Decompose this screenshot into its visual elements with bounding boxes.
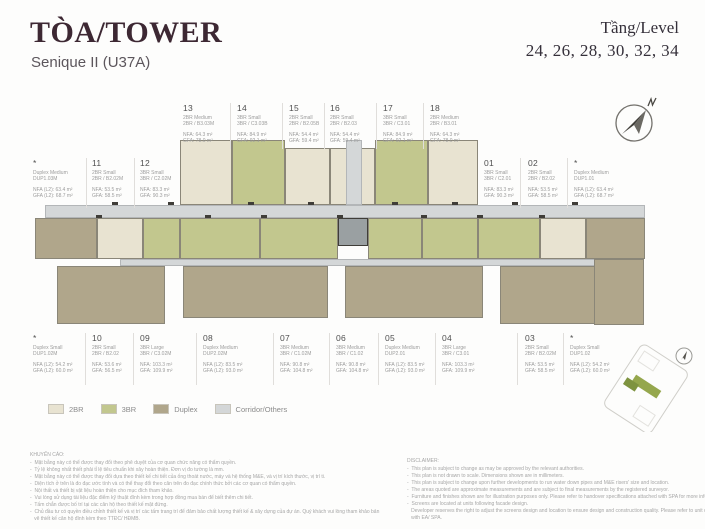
label-divider xyxy=(196,333,197,385)
unit-label-duplex-medium-right: * Duplex Medium DUP1.01 NFA (L2): 63.4 m… xyxy=(574,158,628,199)
plan-lower-walkway xyxy=(120,259,600,266)
unit-number: 12 xyxy=(140,158,194,168)
unit-number: 10 xyxy=(92,333,146,343)
plan-unit-09-block xyxy=(180,218,260,259)
plan-elevator-core xyxy=(338,218,368,246)
plan-unit-15-block xyxy=(285,148,330,205)
level-label: Tầng/Level xyxy=(526,18,679,38)
unit-label-duplex-medium-left: * Duplex Medium DUP1.03M NFA (L2): 63.4 … xyxy=(33,158,87,199)
unit-label-11: 11 2BR Small 2BR / B2.02M NFA: 53.5 m² G… xyxy=(92,158,146,199)
note-line: - The areas quoted are approximate measu… xyxy=(407,487,699,494)
plan-unit-17-block xyxy=(375,140,428,205)
label-divider xyxy=(567,158,568,208)
unit-code: 3BR / C3.01 xyxy=(383,121,437,127)
plan-duplex-small-left-block xyxy=(57,266,165,324)
unit-number: 18 xyxy=(430,103,484,113)
unit-label-06: 06 3BR Medium 3BR / C1.02 NFA: 90.8 m² G… xyxy=(336,333,390,374)
site-minimap xyxy=(596,342,698,432)
legend-swatch-duplex xyxy=(153,404,169,414)
wall-mark xyxy=(205,215,211,218)
legend-swatch-corridor xyxy=(215,404,231,414)
unit-number: 11 xyxy=(92,158,146,168)
label-divider xyxy=(329,333,330,385)
unit-number: 06 xyxy=(336,333,390,343)
unit-code: 2BR / B2.02 xyxy=(92,351,146,357)
unit-code: 3BR / C3.02M xyxy=(140,351,194,357)
label-divider xyxy=(376,103,377,149)
unit-number: 17 xyxy=(383,103,437,113)
wall-mark xyxy=(248,202,254,205)
note-line: - Nội thất và thiết bị vật liệu hoàn thi… xyxy=(30,488,402,495)
level-numbers: 24, 26, 28, 30, 32, 34 xyxy=(526,41,679,61)
wall-mark xyxy=(337,215,343,218)
note-line: - Chủ đầu tư có quyền điều chỉnh thiết k… xyxy=(30,509,402,516)
note-line: Developer reserves the right to adjust t… xyxy=(407,508,699,515)
plan-unit-12-block xyxy=(143,218,180,259)
label-divider xyxy=(134,158,135,208)
unit-code: 2BR / B3.03M xyxy=(183,121,237,127)
plan-unit-11-block xyxy=(97,218,143,259)
plan-duplex-right-lower-block xyxy=(594,259,644,325)
label-divider xyxy=(563,333,564,385)
unit-gfa: GFA (L2): 93.0 m² xyxy=(385,368,439,374)
legend-swatch-3br xyxy=(101,404,117,414)
unit-code: DUP1.02M xyxy=(33,351,87,357)
label-divider xyxy=(85,333,86,385)
unit-gfa: GFA: 104.8 m² xyxy=(280,368,334,374)
unit-label-08: 08 Duplex Medium DUP2.02M NFA (L2): 83.5… xyxy=(203,333,257,374)
legend: 2BR 3BR Duplex Corridor/Others xyxy=(48,404,287,414)
wall-mark xyxy=(539,215,545,218)
wall-mark xyxy=(112,202,118,205)
legend-label: Corridor/Others xyxy=(236,405,288,414)
plan-unit-04-block xyxy=(422,218,478,259)
note-line: - Diện tích ở trên là đo đạc ước tính và… xyxy=(30,481,402,488)
label-divider xyxy=(230,103,231,149)
plan-stair-shaft xyxy=(346,140,362,205)
unit-gfa: GFA: 109.9 m² xyxy=(140,368,194,374)
unit-label-10: 10 2BR Small 2BR / B2.02 NFA: 53.6 m² GF… xyxy=(92,333,146,374)
plan-unit-05-block xyxy=(345,266,483,318)
plan-unit-01-block xyxy=(478,218,540,259)
wall-mark xyxy=(512,202,518,205)
unit-code: 3BR / C1.02M xyxy=(280,351,334,357)
unit-label-12: 12 3BR Small 3BR / C2.02M NFA: 83.3 m² G… xyxy=(140,158,194,199)
label-divider xyxy=(378,333,379,385)
wall-mark xyxy=(452,202,458,205)
unit-code: 3BR / C2.02M xyxy=(140,176,194,182)
unit-label-07: 07 3BR Medium 3BR / C1.02M NFA: 90.8 m² … xyxy=(280,333,334,374)
unit-code: 3BR / C1.02 xyxy=(336,351,390,357)
note-line: - Furniture and finishes shown are for i… xyxy=(407,494,699,501)
plan-duplex-left-block xyxy=(35,218,97,259)
note-en-title: DISCLAIMER: xyxy=(407,458,699,465)
plan-unit-08-block xyxy=(183,266,328,318)
unit-gfa: GFA: 58.5 m² xyxy=(92,193,146,199)
note-line: - Vui lòng sử dụng tài liệu đặc điểm kỹ … xyxy=(30,495,402,502)
note-line: - This plan is subject to change upon fu… xyxy=(407,480,699,487)
label-divider xyxy=(133,333,134,385)
note-en: DISCLAIMER: - This plan is subject to ch… xyxy=(407,458,699,522)
unit-number: * xyxy=(33,333,87,343)
unit-number: 08 xyxy=(203,333,257,343)
plan-unit-07-block xyxy=(260,218,338,259)
label-divider xyxy=(435,333,436,385)
plan-corridor xyxy=(45,205,645,218)
level-block: Tầng/Level 24, 26, 28, 30, 32, 34 xyxy=(526,18,679,61)
unit-number: 05 xyxy=(385,333,439,343)
unit-gfa: GFA (L2): 68.7 m² xyxy=(574,193,628,199)
label-divider xyxy=(324,103,325,149)
unit-number: 04 xyxy=(442,333,496,343)
note-line: - This plan is not drawn to scale. Dimen… xyxy=(407,473,699,480)
tower-title: TÒA/TOWER xyxy=(30,16,222,50)
tower-subtitle: Senique II (U37A) xyxy=(31,54,150,71)
unit-code: 2BR / B3.01 xyxy=(430,121,484,127)
unit-code: DUP2.01 xyxy=(385,351,439,357)
label-divider xyxy=(517,333,518,385)
note-line: - Mặt bằng này có thể được thay đổi dựa … xyxy=(30,474,402,481)
unit-gfa: GFA (L2): 68.7 m² xyxy=(33,193,87,199)
unit-label-17: 17 3BR Small 3BR / C3.01 NFA: 84.9 m² GF… xyxy=(383,103,437,144)
unit-gfa: GFA (L2): 60.0 m² xyxy=(33,368,87,374)
unit-gfa: GFA: 56.5 m² xyxy=(92,368,146,374)
unit-gfa: GFA: 90.3 m² xyxy=(140,193,194,199)
legend-label: Duplex xyxy=(174,405,197,414)
plan-unit-06-block xyxy=(368,218,422,259)
unit-gfa: GFA: 92.1 m² xyxy=(383,138,437,144)
legend-label: 3BR xyxy=(122,405,137,414)
note-line: - Mặt bằng này có thể được thay đổi theo… xyxy=(30,460,402,467)
unit-label-18: 18 2BR Medium 2BR / B3.01 NFA: 64.3 m² G… xyxy=(430,103,484,144)
unit-number: * xyxy=(574,158,628,168)
legend-item-corridor: Corridor/Others xyxy=(215,404,288,414)
legend-item-2br: 2BR xyxy=(48,404,84,414)
legend-label: 2BR xyxy=(69,405,84,414)
wall-mark xyxy=(168,202,174,205)
wall-mark xyxy=(572,202,578,205)
unit-code: 3BR / C3.01 xyxy=(442,351,496,357)
wall-mark xyxy=(477,215,483,218)
note-line: - Tỷ lệ không nhất thiết phải tỉ lệ tiêu… xyxy=(30,467,402,474)
unit-label-04: 04 3BR Large 3BR / C3.01 NFA: 103.3 m² G… xyxy=(442,333,496,374)
label-divider xyxy=(282,103,283,149)
label-divider xyxy=(273,333,274,385)
plan-unit-14-block xyxy=(232,140,285,205)
note-line: - Tấm chắn được bố trí tại các căn hộ th… xyxy=(30,502,402,509)
unit-code: DUP2.02M xyxy=(203,351,257,357)
label-divider xyxy=(520,158,521,208)
wall-mark xyxy=(308,202,314,205)
note-line: - This plan is subject to change as may … xyxy=(407,466,699,473)
unit-label-13: 13 2BR Medium 2BR / B3.03M NFA: 64.3 m² … xyxy=(183,103,237,144)
unit-code: DUP1.03M xyxy=(33,176,87,182)
unit-gfa: GFA: 109.9 m² xyxy=(442,368,496,374)
plan-duplex-right-block xyxy=(586,218,645,259)
wall-mark xyxy=(392,202,398,205)
note-vi: KHUYẾN CÁO: - Mặt bằng này có thể được t… xyxy=(30,452,402,523)
floorplan-sheet: TÒA/TOWER Senique II (U37A) Tầng/Level 2… xyxy=(0,0,705,529)
label-divider xyxy=(86,158,87,208)
legend-item-3br: 3BR xyxy=(101,404,137,414)
unit-number: 13 xyxy=(183,103,237,113)
note-vi-title: KHUYẾN CÁO: xyxy=(30,452,402,459)
unit-label-09: 09 3BR Large 3BR / C3.02M NFA: 103.3 m² … xyxy=(140,333,194,374)
unit-gfa: GFA: 104.8 m² xyxy=(336,368,390,374)
compass-icon xyxy=(608,92,666,150)
wall-mark xyxy=(421,215,427,218)
note-line: with EA/ SPA. xyxy=(407,515,699,522)
legend-swatch-2br xyxy=(48,404,64,414)
note-line: - Screens are located at units following… xyxy=(407,501,699,508)
legend-item-duplex: Duplex xyxy=(153,404,197,414)
unit-number: 07 xyxy=(280,333,334,343)
wall-mark xyxy=(96,215,102,218)
label-divider xyxy=(423,103,424,149)
unit-number: 09 xyxy=(140,333,194,343)
unit-label-05: 05 Duplex Medium DUP2.01 NFA (L2): 83.5 … xyxy=(385,333,439,374)
unit-code: 2BR / B2.02M xyxy=(92,176,146,182)
unit-code: DUP1.01 xyxy=(574,176,628,182)
unit-gfa: GFA: 78.0 m² xyxy=(430,138,484,144)
plan-unit-02-block xyxy=(540,218,586,259)
unit-gfa: GFA: 78.0 m² xyxy=(183,138,237,144)
note-line: vẽ thiết kế căn hộ đính kèm theo TTĐC/ H… xyxy=(30,516,402,523)
unit-number: * xyxy=(33,158,87,168)
unit-gfa: GFA (L2): 93.0 m² xyxy=(203,368,257,374)
unit-label-duplex-small-left: * Duplex Small DUP1.02M NFA (L2): 54.2 m… xyxy=(33,333,87,374)
plan-unit-18-block xyxy=(428,140,478,205)
wall-mark xyxy=(261,215,267,218)
